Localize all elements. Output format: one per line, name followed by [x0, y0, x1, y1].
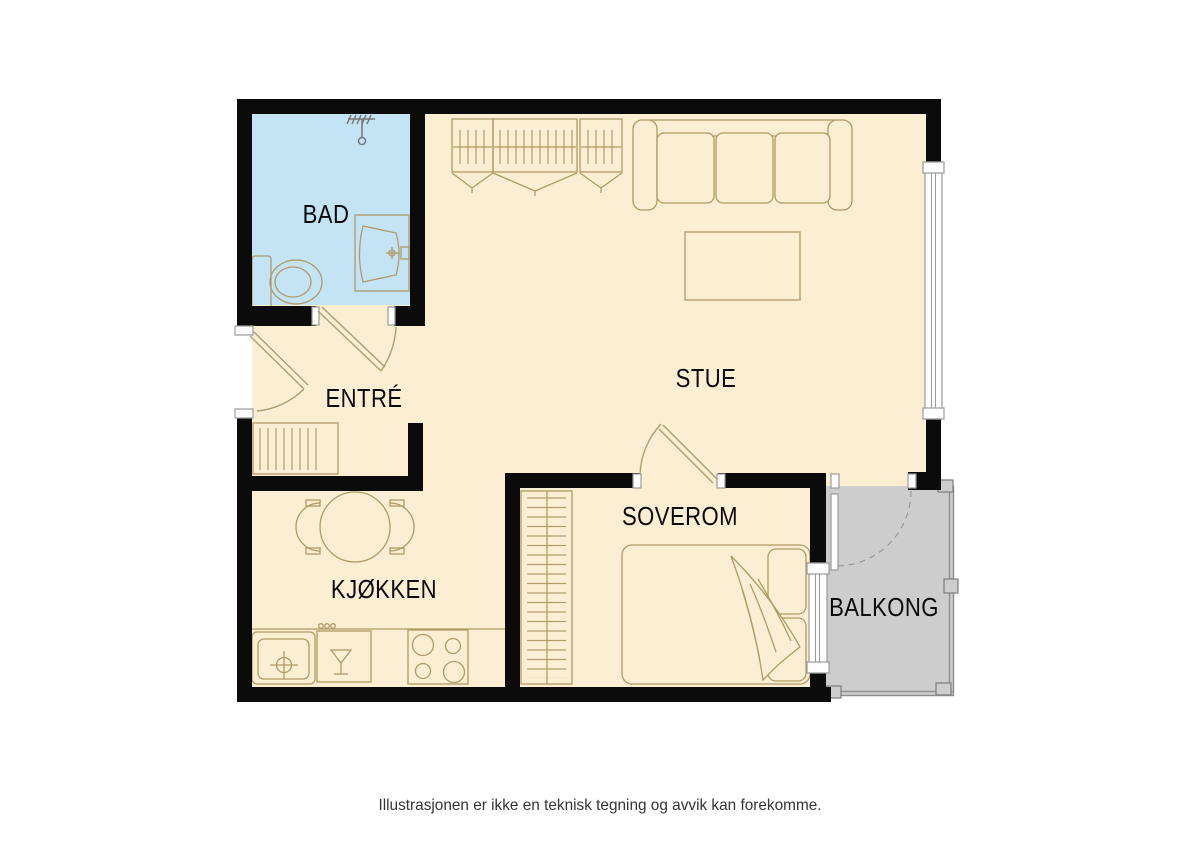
- railing-bracket: [936, 683, 951, 695]
- room-label-bad: BAD: [233, 199, 420, 229]
- room-label-balkong: BALKONG: [791, 592, 978, 622]
- window: [923, 162, 944, 419]
- railing-bracket: [944, 579, 958, 593]
- floor-plan: BAD ENTRÉ STUE KJØKKEN SOVEROM BALKONG I…: [0, 0, 1200, 848]
- bed: [622, 545, 810, 684]
- sofa: [633, 120, 852, 210]
- balcony-floor: [826, 486, 953, 696]
- room-label-entre: ENTRÉ: [271, 383, 458, 413]
- disclaimer-caption: Illustrasjonen er ikke en teknisk tegnin…: [24, 797, 1176, 815]
- room-label-soverom: SOVEROM: [587, 501, 774, 531]
- room-label-kjokken: KJØKKEN: [291, 574, 478, 604]
- dining-table: [320, 492, 390, 562]
- floor-plan-drawing: [0, 0, 1200, 848]
- bedroom-wardrobe: [521, 491, 572, 684]
- room-label-stue: STUE: [613, 363, 800, 393]
